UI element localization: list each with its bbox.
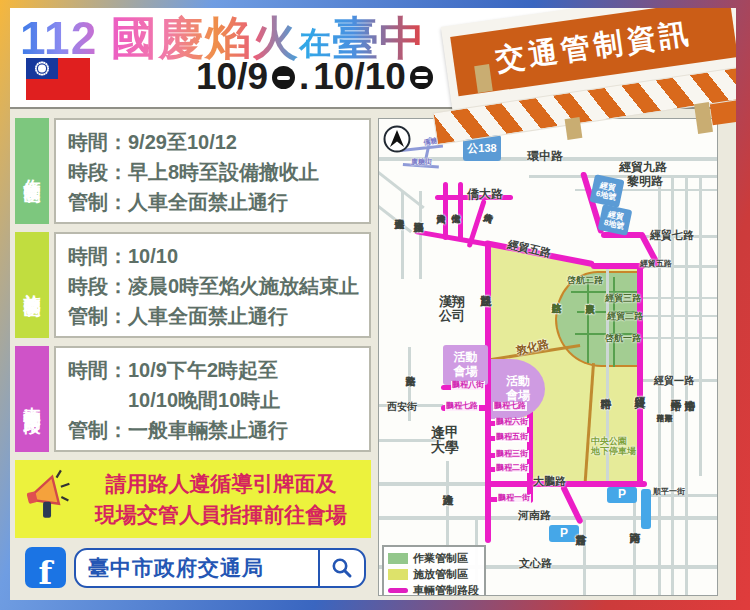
map-label-經貿五路: 經貿五路 bbox=[640, 260, 672, 269]
map-label-鵬程一街: 鵬程一街 bbox=[497, 494, 531, 503]
info-box-content: 時間：9/29至10/12時段：早上8時至設備撤收止管制：人車全面禁止通行 bbox=[54, 118, 371, 224]
legend-swatch bbox=[388, 553, 408, 564]
info-line: 時間：10/10 bbox=[68, 241, 365, 271]
map-label-鵬程五街: 鵬程五街 bbox=[495, 433, 529, 442]
info-box-row-2: 車輛管制路段時間：10/9下午2時起至 10/10晚間10時止管制：一般車輛禁止… bbox=[15, 346, 371, 452]
map-road-gray bbox=[583, 520, 586, 596]
map-label-西安街: 西安街 bbox=[387, 401, 417, 412]
map-label-鵬程八街: 鵬程八街 bbox=[451, 381, 485, 390]
map-label-鵬程二街: 鵬程二街 bbox=[495, 464, 529, 473]
map-area-parking-strip bbox=[641, 489, 651, 529]
map-label-經貿九路: 經貿九路 bbox=[619, 161, 667, 174]
map-label-經貿二路: 經貿二路 bbox=[607, 312, 643, 322]
map-area-經貿6地號: 經貿6地號 bbox=[589, 174, 624, 208]
facebook-search-bar[interactable]: 臺中市政府交通局 bbox=[74, 548, 366, 588]
traffic-control-map: 公138經貿6地號經貿8地號活動會場活動會場PP 環中路經貿九路黎明路僑大路僑大… bbox=[378, 118, 718, 596]
map-road-pink bbox=[443, 182, 448, 240]
info-line: 時段：早上8時至設備撤收止 bbox=[68, 157, 365, 187]
info-boxes: 作業管制區時間：9/29至10/12時段：早上8時至設備撤收止管制：人車全面禁止… bbox=[15, 118, 371, 452]
map-road-gray bbox=[643, 337, 718, 339]
info-box-row-0: 作業管制區時間：9/29至10/12時段：早上8時至設備撤收止管制：人車全面禁止… bbox=[15, 118, 371, 224]
search-icon[interactable] bbox=[320, 556, 364, 580]
map-road-gray bbox=[401, 191, 404, 279]
map-label-經貿三路: 經貿三路 bbox=[605, 294, 641, 304]
map-road-pink bbox=[414, 229, 492, 247]
legend-swatch bbox=[388, 588, 408, 593]
map-label-啓航一路: 啓航一路 bbox=[605, 334, 641, 344]
map-label-經貿一路: 經貿一路 bbox=[654, 375, 694, 386]
map-label-鵬程三街: 鵬程三街 bbox=[495, 450, 529, 459]
map-area-P: P bbox=[607, 487, 637, 503]
map-label-文心路: 文心路 bbox=[519, 557, 552, 569]
legend-row: 施放管制區 bbox=[388, 567, 480, 582]
map-road-gray bbox=[379, 482, 489, 486]
info-box-tab: 施放管制區 bbox=[15, 232, 49, 338]
info-line: 時間：9/29至10/12 bbox=[68, 127, 365, 157]
map-area-公138: 公138 bbox=[463, 135, 501, 161]
north-arrow-icon bbox=[383, 125, 411, 157]
date-2: 10/10 bbox=[313, 56, 406, 98]
event-dates: 10/9 . 10/10 bbox=[196, 56, 433, 98]
map-label-漢翔公司: 漢翔公司 bbox=[439, 295, 465, 324]
map-area-P: P bbox=[549, 525, 579, 542]
info-box-tab: 作業管制區 bbox=[15, 118, 49, 224]
info-line: 管制：人車全面禁止通行 bbox=[68, 187, 365, 217]
info-line: 時間：10/9下午2時起至 bbox=[68, 355, 365, 385]
map-road-gray bbox=[446, 461, 449, 553]
facebook-icon[interactable]: f bbox=[25, 547, 66, 588]
legend-row: 作業管制區 bbox=[388, 551, 480, 566]
map-road-gray bbox=[643, 315, 718, 317]
date-2-badge-icon bbox=[410, 66, 433, 89]
info-box-content: 時間：10/10時段：凌晨0時至焰火施放結束止管制：人車全面禁止通行 bbox=[54, 232, 371, 338]
info-box-row-1: 施放管制區時間：10/10時段：凌晨0時至焰火施放結束止管制：人車全面禁止通行 bbox=[15, 232, 371, 338]
notice-box: 請用路人遵循導引牌面及 現場交管人員指揮前往會場 bbox=[15, 460, 371, 538]
map-label-順平一街: 順平一街 bbox=[653, 488, 685, 497]
poster-page: 112 國慶焰火在臺中 10/9 . bbox=[10, 8, 736, 600]
taiwan-flag-icon bbox=[26, 58, 90, 104]
info-line: 時段：凌晨0時至焰火施放結束止 bbox=[68, 271, 365, 301]
map-label-逢甲大學: 逢甲大學 bbox=[431, 425, 459, 456]
map-label-鵬程七路: 鵬程七路 bbox=[445, 402, 479, 411]
facebook-account-name: 臺中市政府交通局 bbox=[76, 554, 318, 582]
map-label-環中路: 環中路 bbox=[527, 150, 563, 163]
info-line: 管制：人車全面禁止通行 bbox=[68, 301, 365, 331]
map-road-gray bbox=[643, 297, 718, 299]
date-1: 10/9 bbox=[196, 56, 268, 98]
legend-label: 施放管制區 bbox=[413, 567, 468, 582]
map-label-大鵬路: 大鵬路 bbox=[533, 475, 566, 487]
map-label-中央公園地下停車場: 中央公園地下停車場 bbox=[591, 437, 636, 457]
notice-text: 請用路人遵循導引牌面及 現場交管人員指揮前往會場 bbox=[77, 468, 365, 531]
info-box-tab: 車輛管制路段 bbox=[15, 346, 49, 452]
map-label-僑大路: 僑大路 bbox=[467, 188, 503, 201]
map-label-啓航二路: 啓航二路 bbox=[567, 276, 603, 286]
map-road-gray bbox=[378, 205, 412, 233]
info-box-content: 時間：10/9下午2時起至 10/10晚間10時止管制：一般車輛禁止通行 bbox=[54, 346, 371, 452]
info-line: 管制：一般車輛禁止通行 bbox=[68, 415, 365, 445]
footer-bar: f 臺中市政府交通局 bbox=[15, 546, 371, 589]
map-road-gray bbox=[529, 175, 718, 178]
map-label-僑大八街: 僑大八街 bbox=[487, 205, 496, 208]
map-area-活動會場: 活動會場 bbox=[443, 345, 488, 385]
map-label-河南路: 河南路 bbox=[518, 509, 551, 521]
poster-frame: 112 國慶焰火在臺中 10/9 . bbox=[0, 0, 750, 610]
map-label-廣糖街: 廣糖街 bbox=[411, 158, 432, 166]
legend-label: 車輛管制路段 bbox=[413, 583, 479, 596]
info-line: 10/10晚間10時止 bbox=[68, 385, 365, 415]
date-1-badge-icon bbox=[272, 66, 295, 89]
legend-label: 作業管制區 bbox=[413, 551, 468, 566]
map-legend: 作業管制區施放管制區車輛管制路段 bbox=[382, 545, 486, 596]
info-panel: 作業管制區時間：9/29至10/12時段：早上8時至設備撤收止管制：人車全面禁止… bbox=[15, 112, 371, 589]
date-separator: . bbox=[299, 56, 309, 98]
map-road-pink bbox=[458, 182, 463, 240]
map-label-經貿七路: 經貿七路 bbox=[650, 229, 694, 241]
map-label-鵬程七路: 鵬程七路 bbox=[493, 402, 527, 411]
legend-swatch bbox=[388, 569, 408, 580]
map-road-gray bbox=[699, 176, 702, 476]
megaphone-icon bbox=[21, 468, 77, 530]
map-label-鵬程六街: 鵬程六街 bbox=[495, 418, 529, 427]
legend-row: 車輛管制路段 bbox=[388, 583, 480, 596]
header: 112 國慶焰火在臺中 10/9 . bbox=[10, 8, 736, 109]
map-label-黎明路: 黎明路 bbox=[627, 175, 663, 188]
